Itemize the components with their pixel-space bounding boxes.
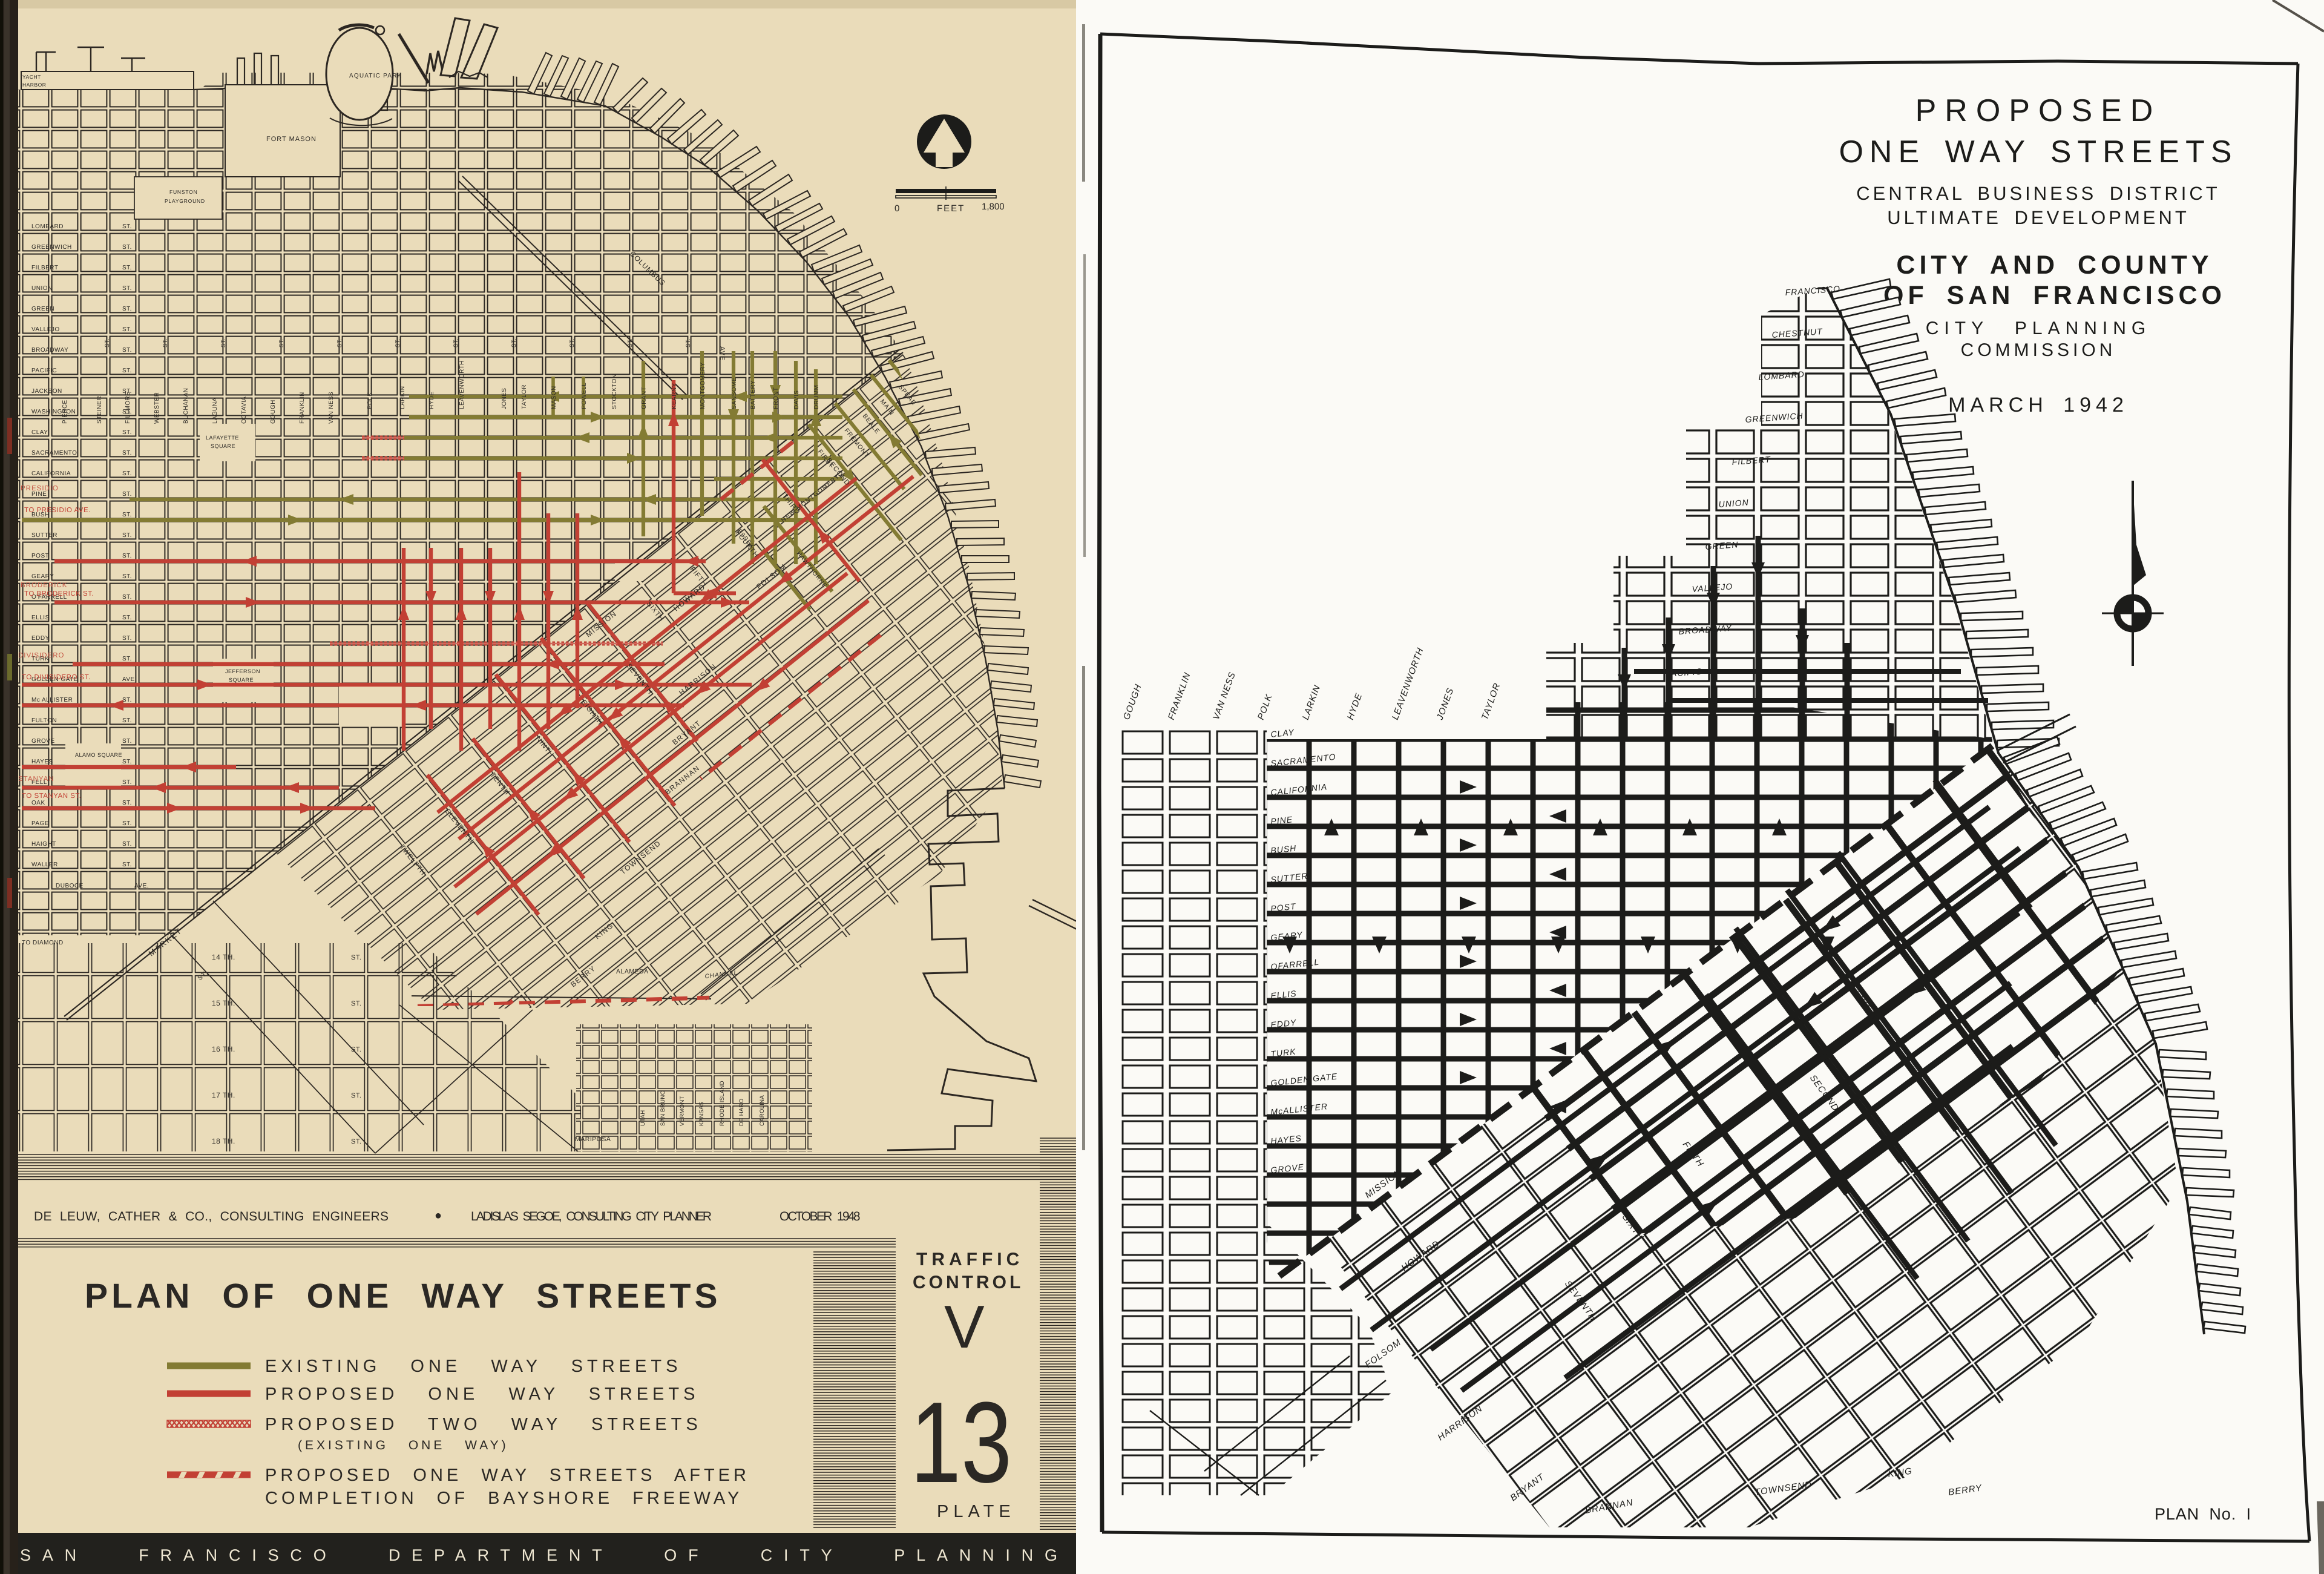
svg-text:WALLER: WALLER [31, 861, 58, 868]
svg-text:LOMBARD: LOMBARD [31, 223, 64, 230]
svg-text:ONE WAY STREETS: ONE WAY STREETS [1839, 134, 2237, 170]
svg-text:DIVISIDERO: DIVISIDERO [18, 652, 64, 659]
svg-text:SUTTER: SUTTER [31, 532, 57, 539]
svg-text:ST.: ST. [122, 841, 132, 848]
svg-text:ST.: ST. [122, 265, 132, 271]
svg-text:PLAYGROUND: PLAYGROUND [165, 198, 205, 204]
svg-text:ST.: ST. [122, 223, 132, 230]
svg-text:BUCHANAN: BUCHANAN [183, 388, 189, 424]
svg-text:17 TH.: 17 TH. [212, 1091, 235, 1099]
svg-text:ST.: ST. [122, 244, 132, 251]
svg-text:GOUGH: GOUGH [270, 400, 277, 424]
svg-text:DE HARO: DE HARO [738, 1099, 745, 1126]
svg-text:ST.: ST. [122, 614, 132, 621]
svg-text:CITY PLANNING: CITY PLANNING [1926, 318, 2152, 338]
svg-text:0: 0 [894, 203, 899, 214]
svg-text:LADISLAS SEGOE, CONSULTING CIT: LADISLAS SEGOE, CONSULTING CITY PLANNER [471, 1210, 713, 1223]
svg-text:POLK: POLK [367, 392, 373, 409]
svg-text:MONTGOMERY: MONTGOMERY [700, 362, 706, 409]
svg-text:HAIGHT: HAIGHT [31, 841, 56, 848]
svg-text:GEARY: GEARY [31, 573, 54, 580]
svg-text:ST.: ST. [122, 326, 132, 333]
svg-text:ULTIMATE DEVELOPMENT: ULTIMATE DEVELOPMENT [1887, 207, 2190, 228]
svg-text:POST: POST [31, 553, 49, 559]
svg-text:HYDE: HYDE [428, 392, 435, 409]
svg-text:ST.: ST. [122, 738, 132, 745]
svg-text:GREEN: GREEN [31, 306, 54, 312]
svg-text:PLATE: PLATE [937, 1502, 1016, 1521]
svg-text:OF SAN FRANCISCO: OF SAN FRANCISCO [1883, 281, 2226, 310]
svg-text:1,800: 1,800 [982, 202, 1005, 212]
svg-text:OCTAVIA: OCTAVIA [241, 397, 248, 424]
svg-text:ST.: ST. [351, 1000, 361, 1007]
svg-text:DUBOCE: DUBOCE [56, 883, 84, 889]
svg-text:SAN FRANCISCO DEPARTMENT OF CI: SAN FRANCISCO DEPARTMENT OF CITY PLANNIN… [20, 1546, 1065, 1564]
svg-text:JEFFERSON: JEFFERSON [225, 668, 260, 674]
svg-text:DE LEUW, CATHER & CO., CONSULT: DE LEUW, CATHER & CO., CONSULTING ENGINE… [34, 1210, 390, 1223]
svg-text:GREENWICH: GREENWICH [31, 244, 72, 251]
svg-text:DRUMM: DRUMM [813, 385, 820, 409]
svg-text:FRANKLIN: FRANKLIN [299, 392, 306, 424]
svg-text:TAYLOR: TAYLOR [521, 384, 528, 409]
svg-text:PLAN OF ONE WAY STREETS: PLAN OF ONE WAY STREETS [85, 1277, 725, 1316]
svg-text:V: V [944, 1293, 985, 1361]
svg-text:KANSAS: KANSAS [698, 1102, 705, 1126]
svg-text:●: ● [435, 1209, 442, 1222]
svg-text:POWELL: POWELL [581, 383, 588, 409]
svg-text:CAROLINA: CAROLINA [759, 1095, 766, 1126]
svg-text:ST.: ST. [122, 573, 132, 580]
svg-text:PAGE: PAGE [31, 820, 49, 827]
svg-text:KEARNY: KEARNY [671, 383, 678, 409]
svg-text:ST.: ST. [122, 512, 132, 518]
svg-text:PROPOSED ONE WAY STREETS: PROPOSED ONE WAY STREETS [265, 1385, 699, 1404]
svg-text:ST.: ST. [122, 656, 132, 662]
svg-text:ST.: ST. [220, 338, 227, 347]
svg-text:FULTON: FULTON [31, 717, 57, 724]
svg-text:ST.: ST. [122, 532, 132, 539]
svg-text:MASON: MASON [551, 386, 557, 409]
svg-text:CENTRAL BUSINESS DISTRICT: CENTRAL BUSINESS DISTRICT [1856, 183, 2220, 204]
svg-text:Mc ALLISTER: Mc ALLISTER [31, 697, 73, 703]
svg-text:CONTROL: CONTROL [913, 1273, 1023, 1292]
svg-text:CITY AND COUNTY: CITY AND COUNTY [1896, 251, 2213, 280]
svg-text:ST.: ST. [122, 450, 132, 456]
svg-text:(EXISTING ONE WAY): (EXISTING ONE WAY) [298, 1438, 509, 1452]
svg-text:PROPOSED TWO WAY STREETS: PROPOSED TWO WAY STREETS [265, 1415, 702, 1434]
svg-text:FILBERT: FILBERT [31, 265, 58, 271]
svg-text:STEINER: STEINER [96, 396, 103, 424]
svg-text:ST.: ST. [351, 1046, 361, 1053]
svg-text:DAVIS: DAVIS [793, 390, 800, 409]
svg-text:LARKIN: LARKIN [399, 386, 406, 409]
svg-text:ST.: ST. [122, 861, 132, 868]
svg-text:TO PRESIDIO AVE.: TO PRESIDIO AVE. [24, 507, 91, 514]
svg-text:TO DIVISIDERO ST.: TO DIVISIDERO ST. [22, 674, 91, 681]
svg-text:ST.: ST. [122, 697, 132, 703]
svg-text:VAN NESS: VAN NESS [328, 392, 335, 424]
svg-text:15 TH.: 15 TH. [212, 999, 235, 1007]
svg-text:ST.: ST. [122, 429, 132, 436]
svg-text:ST.: ST. [162, 338, 169, 347]
svg-text:ST.: ST. [569, 338, 576, 347]
svg-text:PRESIDIO: PRESIDIO [21, 485, 59, 492]
svg-text:AQUATIC PARK: AQUATIC PARK [349, 73, 402, 79]
svg-text:ST.: ST. [336, 338, 343, 347]
svg-text:JONES: JONES [501, 388, 508, 409]
svg-text:HARBOR: HARBOR [22, 82, 46, 88]
svg-text:AVE: AVE [718, 346, 726, 361]
svg-text:ST.: ST. [122, 800, 132, 806]
svg-text:ST.: ST. [122, 759, 132, 765]
svg-text:COMPLETION OF BAYSHORE FREEWAY: COMPLETION OF BAYSHORE FREEWAY [265, 1489, 743, 1508]
svg-text:PACIFIC: PACIFIC [31, 367, 57, 374]
svg-text:MARIPOSA: MARIPOSA [575, 1136, 611, 1143]
svg-text:WEBSTER: WEBSTER [154, 392, 160, 424]
svg-text:ST.: ST. [122, 717, 132, 724]
svg-text:ST.: ST. [122, 306, 132, 312]
svg-text:SQUARE: SQUARE [211, 443, 235, 449]
svg-text:13: 13 [910, 1378, 1012, 1507]
svg-text:VERMONT: VERMONT [679, 1096, 686, 1126]
svg-text:TRAFFIC: TRAFFIC [916, 1250, 1023, 1269]
svg-text:14 TH.: 14 TH. [212, 953, 235, 961]
svg-text:UNION: UNION [31, 285, 53, 292]
svg-text:SAN BRUNO: SAN BRUNO [660, 1090, 666, 1126]
svg-text:ST.: ST. [395, 338, 401, 347]
svg-text:PIERCE: PIERCE [62, 400, 68, 424]
svg-text:PLAN No. I: PLAN No. I [2155, 1505, 2253, 1523]
svg-text:16 TH.: 16 TH. [212, 1045, 235, 1053]
svg-text:SACRAMENTO: SACRAMENTO [31, 450, 77, 456]
svg-text:FUNSTON: FUNSTON [169, 189, 198, 195]
svg-text:UTAH: UTAH [640, 1110, 646, 1126]
svg-text:MARCH 1942: MARCH 1942 [1948, 393, 2129, 417]
svg-text:VALLEJO: VALLEJO [31, 326, 60, 333]
svg-text:ST.: ST. [122, 553, 132, 559]
svg-text:ST.: ST. [122, 594, 132, 601]
svg-text:ST.: ST. [453, 338, 459, 347]
svg-text:ST.: ST. [122, 367, 132, 374]
svg-text:LEAVENWORTH: LEAVENWORTH [459, 360, 465, 409]
svg-text:FILLMORE: FILLMORE [125, 392, 131, 424]
svg-text:ST.: ST. [351, 1138, 361, 1145]
svg-text:ST.: ST. [122, 285, 132, 292]
svg-text:PROPOSED: PROPOSED [1915, 93, 2162, 128]
svg-text:CLAY: CLAY [31, 429, 48, 436]
svg-text:OCTOBER 1948: OCTOBER 1948 [780, 1210, 862, 1223]
svg-text:BATTERY: BATTERY [750, 380, 757, 409]
svg-text:ST.: ST. [511, 338, 517, 347]
svg-text:ST.: ST. [122, 820, 132, 827]
svg-text:ST.: ST. [278, 338, 285, 347]
svg-text:LAGUNA: LAGUNA [212, 397, 218, 424]
svg-text:STANYAN: STANYAN [18, 775, 54, 783]
svg-text:ST.: ST. [122, 779, 132, 786]
svg-text:AVE.: AVE. [134, 883, 149, 889]
svg-text:RHODE ISLAND: RHODE ISLAND [719, 1081, 726, 1126]
svg-text:ST.: ST. [685, 338, 692, 347]
svg-text:ELLIS: ELLIS [31, 614, 50, 621]
svg-text:YACHT: YACHT [22, 74, 41, 80]
svg-text:GROVE: GROVE [31, 738, 55, 745]
svg-text:OAK: OAK [31, 800, 45, 806]
svg-text:SANSOME: SANSOME [731, 377, 738, 409]
svg-text:CALIFORNIA: CALIFORNIA [31, 470, 71, 477]
svg-text:ST.: ST. [627, 338, 634, 347]
svg-text:FEET: FEET [937, 203, 965, 214]
svg-text:TO BRODERICK ST.: TO BRODERICK ST. [24, 590, 94, 598]
svg-text:BROADWAY: BROADWAY [31, 347, 68, 354]
svg-text:EDDY: EDDY [31, 635, 50, 642]
svg-text:FRONT: FRONT [773, 387, 780, 409]
svg-text:ST.: ST. [122, 470, 132, 477]
svg-text:ALAMEDA: ALAMEDA [616, 968, 649, 975]
svg-text:ST.: ST. [104, 338, 111, 347]
svg-text:HAYES: HAYES [31, 759, 53, 765]
svg-text:PROPOSED ONE WAY STREETS AFTER: PROPOSED ONE WAY STREETS AFTER [265, 1466, 750, 1485]
svg-text:18 TH.: 18 TH. [212, 1137, 235, 1145]
svg-text:EXISTING ONE WAY STREETS: EXISTING ONE WAY STREETS [265, 1357, 681, 1376]
svg-text:ALAMO SQUARE: ALAMO SQUARE [75, 752, 122, 758]
svg-text:ST.: ST. [351, 954, 361, 961]
svg-text:AVE.: AVE. [122, 676, 137, 683]
svg-text:ST.: ST. [122, 347, 132, 354]
svg-text:ST.: ST. [122, 491, 132, 498]
svg-text:COMMISSION: COMMISSION [1961, 340, 2116, 360]
svg-text:TO DIAMOND: TO DIAMOND [22, 940, 64, 946]
svg-text:SQUARE: SQUARE [229, 677, 254, 683]
svg-text:BRODERICK: BRODERICK [21, 582, 67, 589]
svg-text:ST.: ST. [122, 635, 132, 642]
svg-text:JACKSON: JACKSON [31, 388, 62, 395]
svg-text:ST.: ST. [351, 1092, 361, 1099]
svg-text:WASHINGTON: WASHINGTON [31, 409, 76, 415]
svg-text:GRANT: GRANT [641, 387, 648, 409]
svg-text:STOCKTON: STOCKTON [611, 374, 618, 409]
svg-text:LAFAYETTE: LAFAYETTE [206, 435, 239, 441]
svg-text:FORT MASON: FORT MASON [266, 136, 317, 143]
svg-text:TO STANYAN ST.: TO STANYAN ST. [22, 792, 81, 800]
